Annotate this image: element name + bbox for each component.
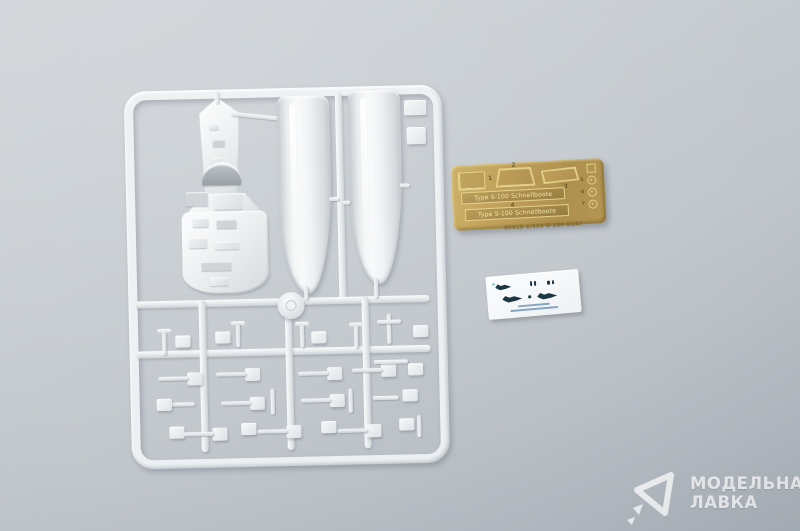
deck-detail [217,219,237,228]
watermark-line1: МОДЕЛЬНАЯ [690,474,800,493]
sprue-small-part [169,426,184,438]
sprue-small-part [231,321,246,348]
sprue-gate [374,278,378,298]
etch-footer-text: 06615 1/350 S-100 BOAT [504,221,583,231]
decal-mark [534,281,536,286]
deck-detail [189,238,207,248]
etch-part-number: 6 [581,189,585,195]
styrene-sprue [113,76,468,486]
sprue-small-part [413,325,428,337]
decal-mark [492,283,495,285]
sprue-small-part [215,331,230,343]
sprue-small-part-gun [216,368,260,382]
deck-detail [213,139,225,146]
decal-sheet [485,269,581,320]
sprue-small-part-gun [337,424,381,438]
deck-detail [193,218,209,227]
deck-detail [215,241,239,250]
sprue-small-part-gun [183,427,227,441]
sprue-small-part-gun [221,397,265,411]
etch-part-number: 1 [488,176,492,182]
product-photo: 1 2 3 5 6 7 Type S-100 Schnellboote 4 Ty… [0,0,800,531]
sprue-small-part [404,100,426,115]
watermark: МОДЕЛЬНАЯ ЛАВКА [626,466,800,531]
deck-detail [210,277,228,285]
sprue-small-part [295,322,310,349]
sprue-gate [304,286,308,300]
sprue-gate [400,183,410,187]
photo-etch-fret: 1 2 3 5 6 7 Type S-100 Schnellboote 4 Ty… [450,158,606,231]
sprue-small-part [311,331,326,343]
sprue-small-part-gun [158,372,202,386]
sprue-small-part [408,363,423,375]
sprue-gate [329,197,339,201]
sprue-gate [342,201,350,205]
sprue-gate [215,92,219,104]
decal-mark [530,281,532,286]
sprue-small-part [399,418,414,430]
sprue-small-part [348,389,353,413]
etch-part-windscreen [495,167,536,188]
sprue-small-part [321,421,336,433]
decal-mark [528,295,531,298]
etch-part-number: 2 [511,163,515,169]
sprue-small-part-mast [387,314,392,344]
sprue-small-part-gun [301,394,345,408]
decal-sawfish-emblem [502,293,523,304]
etch-part-small [587,175,596,184]
decal-sawfish-emblem [537,290,558,301]
sprue-small-part-gun [352,364,396,378]
decal-sawfish-emblem [495,282,512,291]
sprue-small-part [241,423,256,435]
etch-part-number: 5 [580,177,584,183]
etch-part-small [588,199,597,208]
sprue-small-part [374,359,408,364]
etch-part-number: 7 [581,201,585,207]
sprue-small-part [373,396,399,401]
etch-part-windscreen [541,166,580,184]
sprue-small-part-gun [298,367,342,381]
sprue-small-part [157,399,172,411]
deck-detail [214,193,242,210]
sprue-small-part [417,415,421,437]
etch-part-small [588,187,597,196]
etch-part-small [586,163,595,172]
etch-nameplate-top-text: Type S-100 Schnellboote [474,190,552,201]
model-shop-logo-icon [626,466,684,528]
decal-mark [552,280,554,284]
deck-detail [186,192,208,206]
decal-mark [547,281,550,285]
sprue-small-part-mast [377,320,401,325]
deck-detail [209,124,218,130]
etch-part-grid [458,171,486,190]
sprue-small-part [407,127,426,144]
sprue-small-part [402,389,417,401]
sprue-small-part [270,388,275,414]
watermark-line2: ЛАВКА [690,493,758,512]
deck-detail [202,261,232,271]
sprue-small-part [175,335,190,347]
sprue-small-part [157,329,172,356]
sprue-small-part [349,322,364,349]
sprue-small-part-gun [257,425,301,439]
